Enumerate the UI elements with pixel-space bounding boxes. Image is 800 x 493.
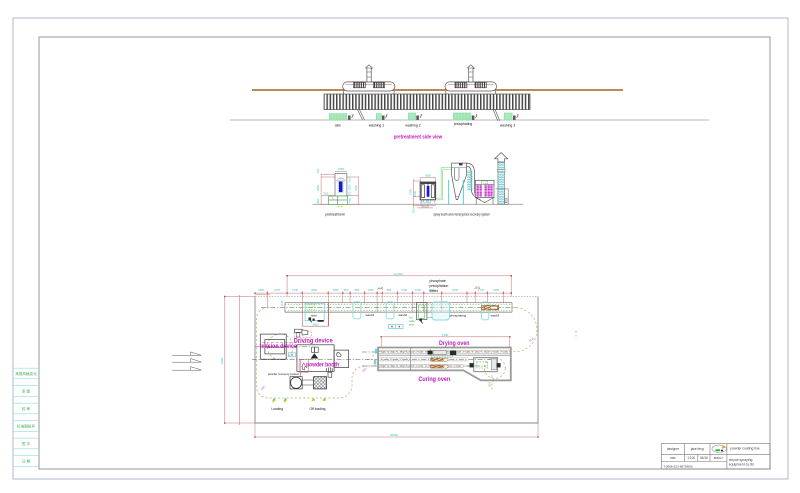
svg-text:skim: skim	[311, 313, 318, 317]
svg-text:1230: 1230	[415, 288, 421, 292]
svg-text:1050: 1050	[338, 167, 345, 171]
svg-text:spray booth and monocyclone re: spray booth and monocyclone recovery sys…	[433, 212, 490, 216]
svg-text:300: 300	[347, 191, 351, 196]
svg-text:washing 1: washing 1	[369, 124, 384, 128]
svg-text:850: 850	[316, 198, 320, 203]
svg-text:1500: 1500	[258, 288, 264, 292]
svg-text:equipment co.ltd: equipment co.ltd	[729, 463, 754, 467]
svg-text:Driving device: Driving device	[294, 338, 333, 344]
svg-text:wash2: wash2	[399, 313, 408, 317]
svg-text:1730: 1730	[401, 288, 407, 292]
svg-text:500: 500	[487, 382, 491, 387]
svg-text:pretreatment: pretreatment	[325, 212, 344, 216]
svg-text:450: 450	[423, 204, 428, 208]
svg-text:7300: 7300	[442, 333, 449, 337]
svg-text:3150: 3150	[354, 184, 358, 191]
svg-text:900: 900	[344, 288, 349, 292]
svg-text:tank: tank	[409, 322, 415, 326]
svg-text:powder booth: powder booth	[306, 362, 339, 368]
svg-text:审 图: 审 图	[22, 389, 31, 394]
svg-text:Drying oven: Drying oven	[439, 341, 470, 347]
svg-text:2200: 2200	[493, 288, 499, 292]
svg-text:3000: 3000	[312, 322, 319, 326]
svg-text:2350: 2350	[409, 188, 413, 195]
svg-text:24,050: 24,050	[393, 272, 403, 276]
svg-text:designer: designer	[667, 447, 680, 451]
svg-text:校 审: 校 审	[22, 406, 31, 411]
svg-text:2500: 2500	[220, 357, 224, 364]
svg-text:wash1: wash1	[366, 313, 375, 317]
svg-text:2250: 2250	[316, 184, 320, 191]
svg-text:3000: 3000	[425, 174, 432, 178]
svg-text:xinyue spraying: xinyue spraying	[729, 458, 753, 462]
svg-text:Curing oven: Curing oven	[419, 377, 451, 383]
svg-text:06/16: 06/16	[700, 456, 708, 460]
svg-text:tower: tower	[430, 289, 439, 293]
svg-text:powder recovery system: powder recovery system	[268, 372, 300, 376]
svg-text:phosphating: phosphating	[450, 313, 467, 317]
svg-text:phosphate: phosphate	[430, 279, 446, 283]
svg-text:powder coating line: powder coating line	[730, 447, 759, 451]
svg-text:签 字: 签 字	[22, 441, 31, 446]
svg-text:washing 3: washing 3	[500, 124, 515, 128]
svg-text:1600: 1600	[413, 190, 417, 197]
svg-text:C,D: C,D	[475, 286, 481, 290]
svg-text:1730: 1730	[292, 288, 298, 292]
svg-text:1450: 1450	[333, 288, 339, 292]
svg-text:500: 500	[316, 168, 320, 173]
svg-text:pretreatment side view: pretreatment side view	[394, 134, 443, 140]
svg-text:日 期: 日 期	[22, 459, 31, 464]
svg-text:1500: 1500	[452, 288, 458, 292]
svg-text:jake feng: jake feng	[690, 447, 704, 451]
svg-text:phosphating: phosphating	[454, 122, 473, 126]
svg-text:1:100: 1:100	[687, 456, 695, 460]
svg-text:3000: 3000	[311, 288, 317, 292]
svg-text:885617: 885617	[714, 456, 723, 460]
svg-text:1730: 1730	[280, 300, 284, 307]
svg-text:25000: 25000	[390, 433, 399, 437]
svg-text:1250: 1250	[347, 184, 351, 191]
svg-text:550: 550	[324, 192, 329, 196]
svg-text:A,B: A,B	[378, 286, 383, 290]
svg-text:常规风格变化: 常规风格变化	[15, 371, 37, 376]
svg-text:150: 150	[412, 208, 416, 213]
svg-text:T:0086-523-8875/666: T:0086-523-8875/666	[663, 464, 693, 468]
svg-text:tension device: tension device	[260, 344, 298, 350]
svg-text:800: 800	[387, 288, 392, 292]
svg-text:washing 2: washing 2	[405, 124, 420, 128]
svg-text:precipitation: precipitation	[430, 284, 449, 288]
svg-text:rate: rate	[670, 456, 676, 460]
svg-text:700: 700	[348, 198, 352, 203]
svg-text:wash3: wash3	[491, 313, 500, 317]
svg-text:skin: skin	[335, 124, 341, 128]
svg-text:2175: 2175	[274, 288, 280, 292]
svg-text:Off loading: Off loading	[310, 407, 326, 411]
svg-text:1445: 1445	[368, 288, 374, 292]
svg-text:Loading: Loading	[271, 407, 283, 411]
svg-text:标准图纸号: 标准图纸号	[17, 424, 35, 429]
svg-text:800: 800	[355, 288, 360, 292]
svg-text:600: 600	[347, 177, 351, 182]
